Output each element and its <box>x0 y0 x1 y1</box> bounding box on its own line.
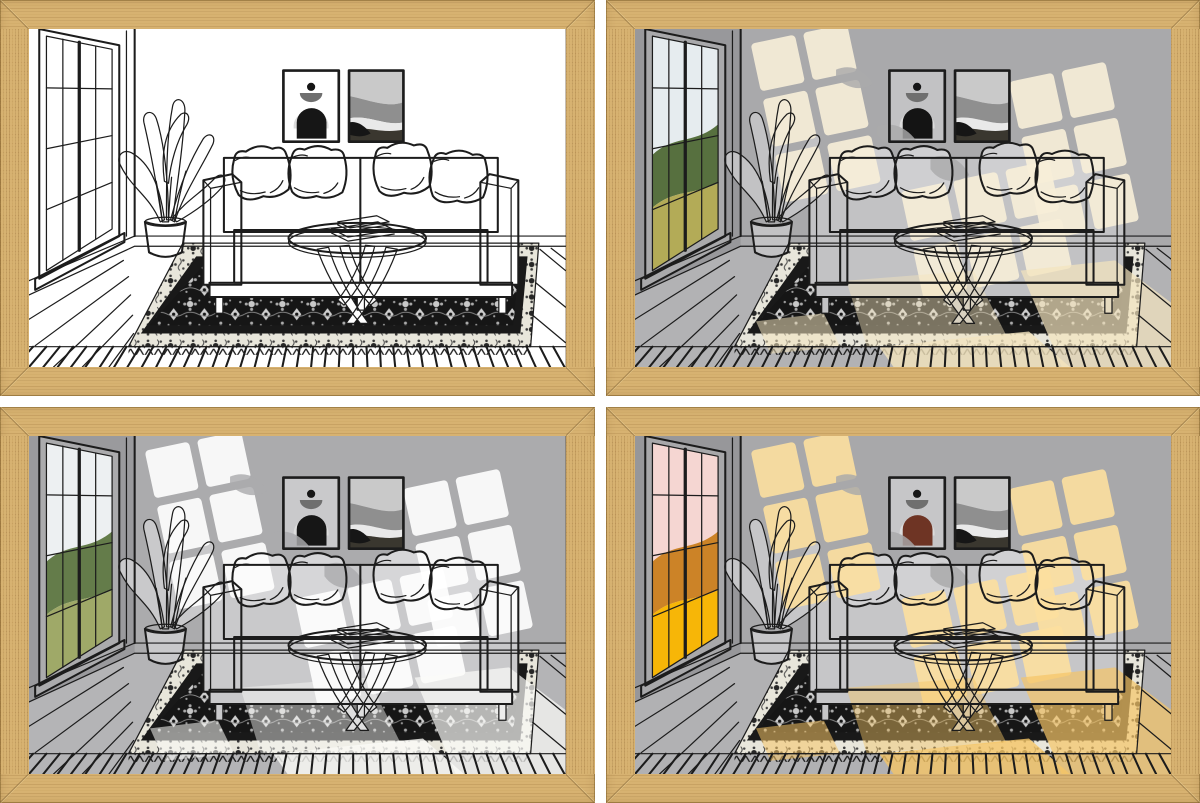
art-dot <box>912 83 920 91</box>
framed-print-bottom-right <box>606 407 1200 803</box>
art-dot <box>307 490 315 498</box>
print-canvas <box>635 436 1172 774</box>
framed-art-grid <box>0 0 1200 803</box>
living-room-line-art-scene <box>29 29 566 367</box>
art-dot <box>912 490 920 498</box>
plant-pot <box>750 222 791 257</box>
wall-art-waves <box>349 71 403 142</box>
print-canvas <box>29 29 566 367</box>
plant-pot <box>750 629 791 664</box>
plant-pot <box>145 222 186 257</box>
framed-print-top-right <box>606 0 1200 396</box>
art-dot <box>307 83 315 91</box>
framed-print-bottom-left <box>0 407 595 803</box>
wall-art-waves <box>349 478 403 549</box>
living-room-line-art-scene <box>635 436 1172 774</box>
print-canvas <box>29 436 566 774</box>
wall-art-waves <box>955 478 1009 549</box>
living-room-line-art-scene <box>29 436 566 774</box>
living-room-line-art-scene <box>635 29 1172 367</box>
plant-pot <box>145 629 186 664</box>
print-canvas <box>635 29 1172 367</box>
framed-print-top-left <box>0 0 595 396</box>
wall-art-waves <box>955 71 1009 142</box>
